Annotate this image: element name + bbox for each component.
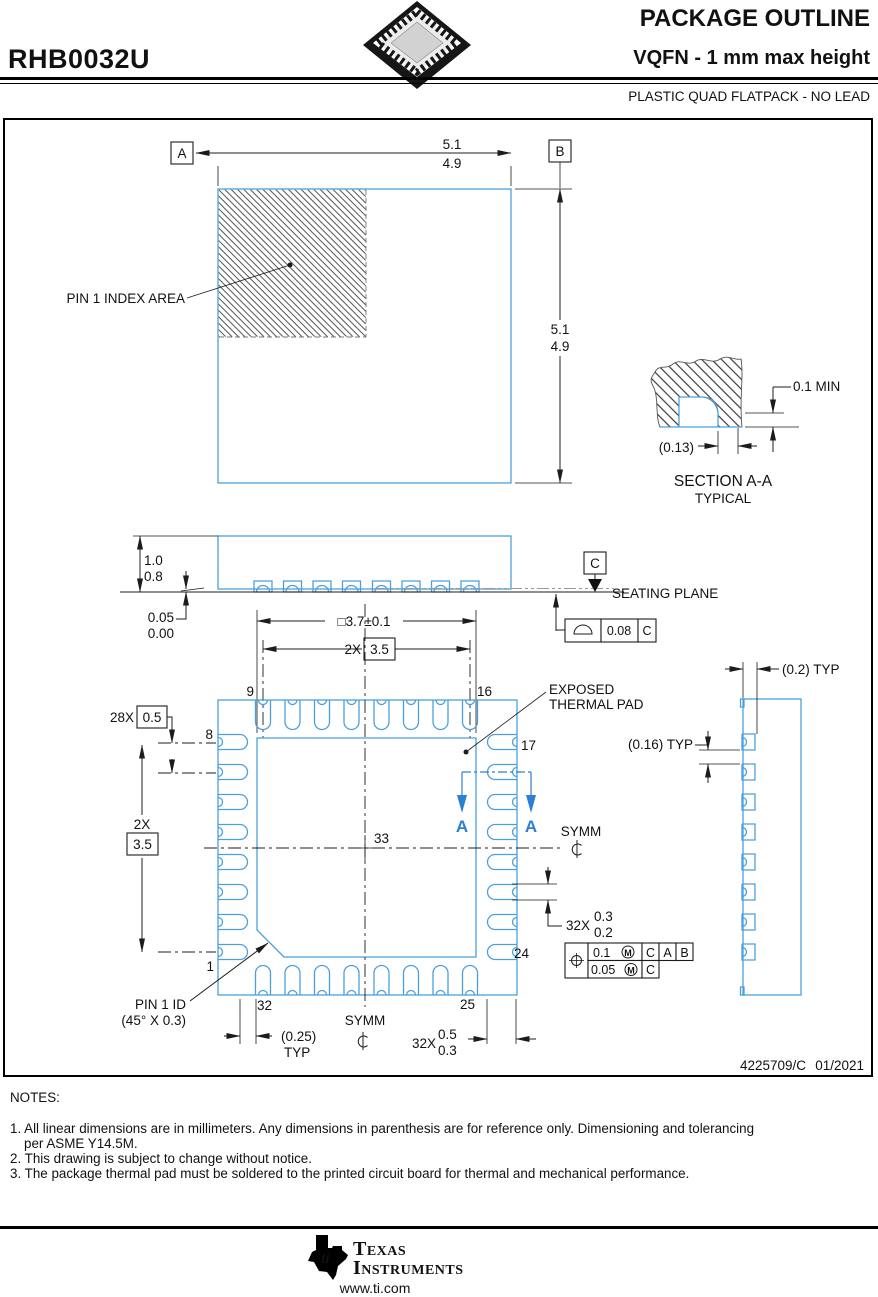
doc-date: 01/2021 — [815, 1058, 864, 1073]
pin-32-label: 32 — [257, 998, 272, 1013]
header-rule-thin — [0, 83, 878, 84]
top-height-min: 4.9 — [551, 339, 570, 354]
top-width-min: 4.9 — [443, 156, 462, 171]
fcf-datum-a: A — [663, 946, 672, 960]
position-tol-1: 0.1 — [593, 946, 610, 960]
pin-24-label: 24 — [514, 946, 530, 961]
span-count-left: 2X — [134, 817, 151, 832]
section-arrow-label-1: A — [456, 817, 468, 836]
ti-logo-icon: ti — [300, 1234, 350, 1282]
drawing-border: 4225709/C 01/2021 — [4, 119, 872, 1076]
pad-length-max: 0.5 — [438, 1027, 457, 1042]
datum-a: A — [177, 146, 186, 161]
brand-bottom: Instruments — [353, 1259, 464, 1278]
mmc-modifier-2: M — [627, 966, 635, 976]
span-dim-left: 2X 3.5 — [127, 745, 216, 952]
lead-depth-ref: (0.2) TYP — [782, 662, 840, 677]
pin1-id-line2: (45° X 0.3) — [121, 1013, 186, 1028]
fcf-datum-c2: C — [646, 963, 655, 977]
thermal-pad-dims: □3.7±0.1 2X 3.5 — [257, 610, 476, 738]
note-1-line1: 1. All linear dimensions are in millimet… — [10, 1121, 754, 1136]
technical-drawing: 4225709/C 01/2021 PIN 1 INDEX AREA A 5.1… — [0, 112, 878, 1087]
page-title: PACKAGE OUTLINE — [640, 5, 870, 33]
part-number: RHB0032U — [8, 44, 150, 75]
span-value-left: 3.5 — [133, 837, 152, 852]
bottom-view: 33 9 16 8 17 1 24 32 25 SYMM SYMM A A — [110, 604, 693, 1060]
lead-edge-ref: (0.25) — [281, 1029, 316, 1044]
website-link[interactable]: www.ti.com — [300, 1280, 450, 1296]
pin-9-label: 9 — [246, 684, 254, 699]
pin-17-label: 17 — [521, 738, 536, 753]
position-fcf: 0.1 M C A B 0.05 M C — [565, 943, 693, 978]
pad-length-min: 0.3 — [438, 1043, 457, 1058]
standoff-min: 0.00 — [148, 626, 174, 641]
package-subtitle: VQFN - 1 mm max height — [633, 47, 870, 70]
pad-width-max: 0.3 — [594, 909, 613, 924]
pad-width-min: 0.2 — [594, 925, 613, 940]
fcf-datum-c: C — [646, 946, 655, 960]
pitch-value: 0.5 — [143, 710, 162, 725]
pin-16-label: 16 — [477, 684, 492, 699]
body-height-min: 0.8 — [144, 569, 163, 584]
span-count-top: 2X — [344, 642, 361, 657]
mmc-modifier-1: M — [624, 948, 632, 958]
section-subtitle: TYPICAL — [695, 491, 752, 506]
section-hatch — [651, 357, 742, 427]
pad-width-count: 32X — [566, 918, 590, 933]
package-type: PLASTIC QUAD FLATPACK - NO LEAD — [628, 89, 870, 104]
lead-ref-dim: (0.13) — [659, 440, 694, 455]
front-view: 1.0 0.8 0.05 0.00 C SEATING PLANE 0.08 C — [120, 536, 718, 642]
exposed-thermal-pad — [257, 738, 476, 957]
body-height-max: 1.0 — [144, 553, 163, 568]
thermal-pad-dim: □3.7±0.1 — [337, 614, 390, 629]
top-height-max: 5.1 — [551, 322, 570, 337]
pin-33-label: 33 — [374, 831, 389, 846]
pin1-index-hatch — [219, 190, 366, 337]
pitch-dim: 28X 0.5 — [110, 706, 216, 773]
section-cut-aa: A A — [456, 772, 537, 836]
standoff-max: 0.05 — [148, 610, 174, 625]
centerline-symbol-bottom — [358, 1032, 367, 1050]
datum-b: B — [555, 144, 564, 159]
section-title: SECTION A-A — [674, 473, 773, 490]
exposed-pad-line2: THERMAL PAD — [549, 697, 644, 712]
note-2: 2. This drawing is subject to change wit… — [10, 1151, 312, 1166]
ti-logo-text: ti — [321, 1251, 329, 1266]
section-view: 0.1 MIN (0.13) SECTION A-A TYPICAL — [651, 357, 840, 506]
doc-number: 4225709/C — [740, 1058, 806, 1073]
lead-thickness-dim: 0.1 MIN — [793, 379, 840, 394]
pad-length-count: 32X — [412, 1036, 436, 1051]
lead-gap-ref: (0.16) TYP — [628, 737, 693, 752]
lead-edge-typ: TYP — [284, 1045, 310, 1060]
flatness-fcf: 0.08 C — [565, 619, 656, 642]
position-tol-2: 0.05 — [591, 963, 615, 977]
flatness-datum: C — [642, 624, 651, 638]
note-1-line2: per ASME Y14.5M. — [24, 1136, 138, 1151]
footer-rule — [0, 1226, 878, 1229]
span-value-top: 3.5 — [370, 642, 389, 657]
brand-name: Texas Instruments — [353, 1240, 464, 1278]
fcf-datum-b: B — [680, 946, 688, 960]
top-width-max: 5.1 — [443, 137, 462, 152]
datasheet-page: RHB0032U PACKAGE OUTLINE VQFN - 1 mm max… — [0, 0, 878, 1297]
pitch-count: 28X — [110, 710, 134, 725]
pin-25-label: 25 — [460, 997, 475, 1012]
exposed-pad-line1: EXPOSED — [549, 682, 615, 697]
flatness-value: 0.08 — [607, 624, 631, 638]
symm-label-bottom: SYMM — [345, 1013, 386, 1028]
symm-label-right: SYMM — [561, 824, 602, 839]
notes-heading: NOTES: — [10, 1090, 60, 1105]
note-3: 3. The package thermal pad must be solde… — [10, 1166, 689, 1181]
seating-plane-label: SEATING PLANE — [612, 586, 718, 601]
pin1-id-line1: PIN 1 ID — [135, 997, 186, 1012]
top-view: PIN 1 INDEX AREA A 5.1 4.9 B 5.1 4.9 — [66, 137, 572, 483]
datum-c: C — [590, 556, 600, 571]
section-arrow-label-2: A — [525, 817, 537, 836]
seating-plane-symbol — [588, 579, 602, 592]
centerline-symbol-right — [572, 840, 581, 858]
pin-8-label: 8 — [205, 727, 213, 742]
pin1-index-label: PIN 1 INDEX AREA — [66, 291, 185, 306]
pin-1-label: 1 — [206, 959, 214, 974]
header-rule-thick — [0, 77, 878, 80]
pad-width-dim: 32X 0.3 0.2 — [512, 867, 613, 940]
